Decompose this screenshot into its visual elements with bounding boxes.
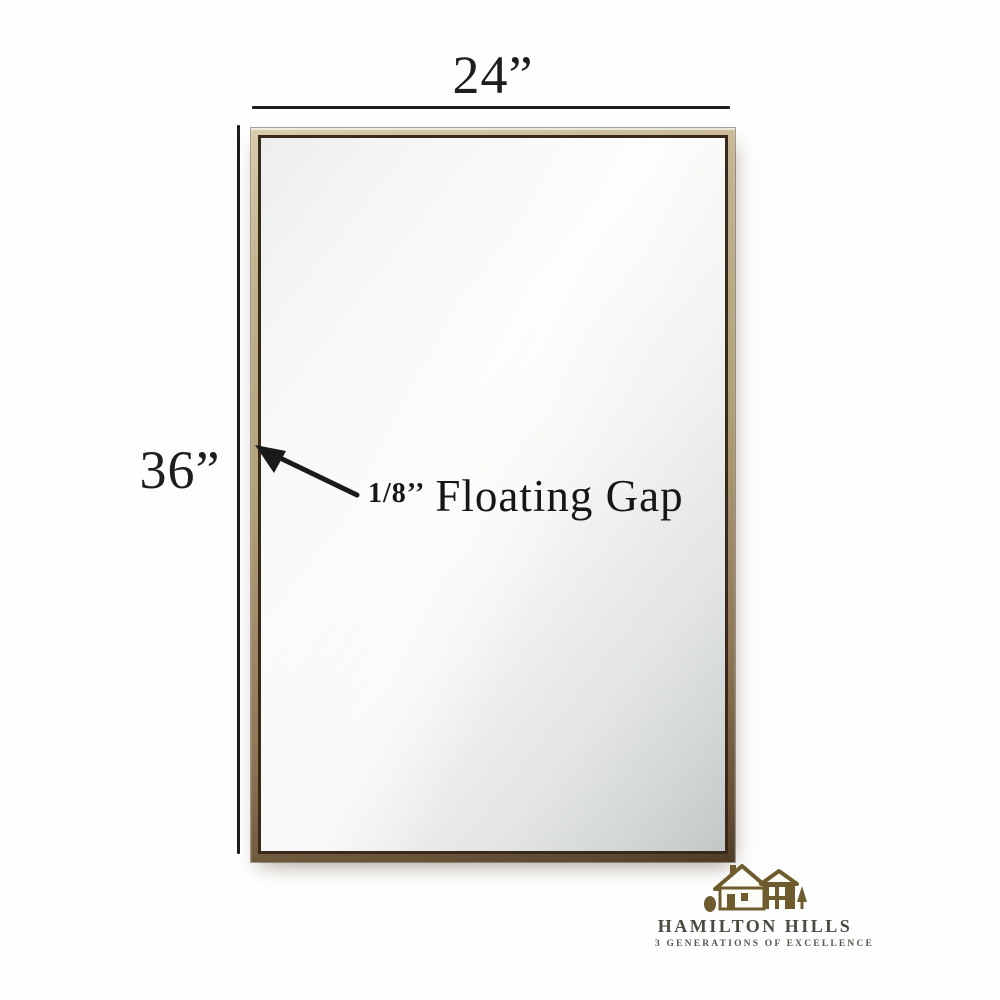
gap-annotation: 1/8’’ Floating Gap	[368, 470, 684, 522]
brand-tagline: 3 GENERATIONS OF EXCELLENCE	[655, 939, 855, 949]
height-dimension-line	[237, 125, 240, 854]
height-dimension-label: 36”	[130, 443, 230, 497]
gap-pointer-arrow-icon	[248, 440, 364, 502]
width-dimension-label: 24”	[251, 48, 735, 102]
brand-name: HAMILTON HILLS	[655, 916, 855, 937]
width-dimension-line	[252, 106, 730, 109]
brand-logo: HAMILTON HILLS 3 GENERATIONS OF EXCELLEN…	[655, 862, 855, 949]
gap-size-text: 1/8’’	[368, 478, 425, 510]
product-image: 24” 36” 1/8’’ Floating Gap	[0, 0, 1000, 1000]
gap-label-text: Floating Gap	[435, 470, 683, 522]
house-icon	[703, 862, 807, 912]
